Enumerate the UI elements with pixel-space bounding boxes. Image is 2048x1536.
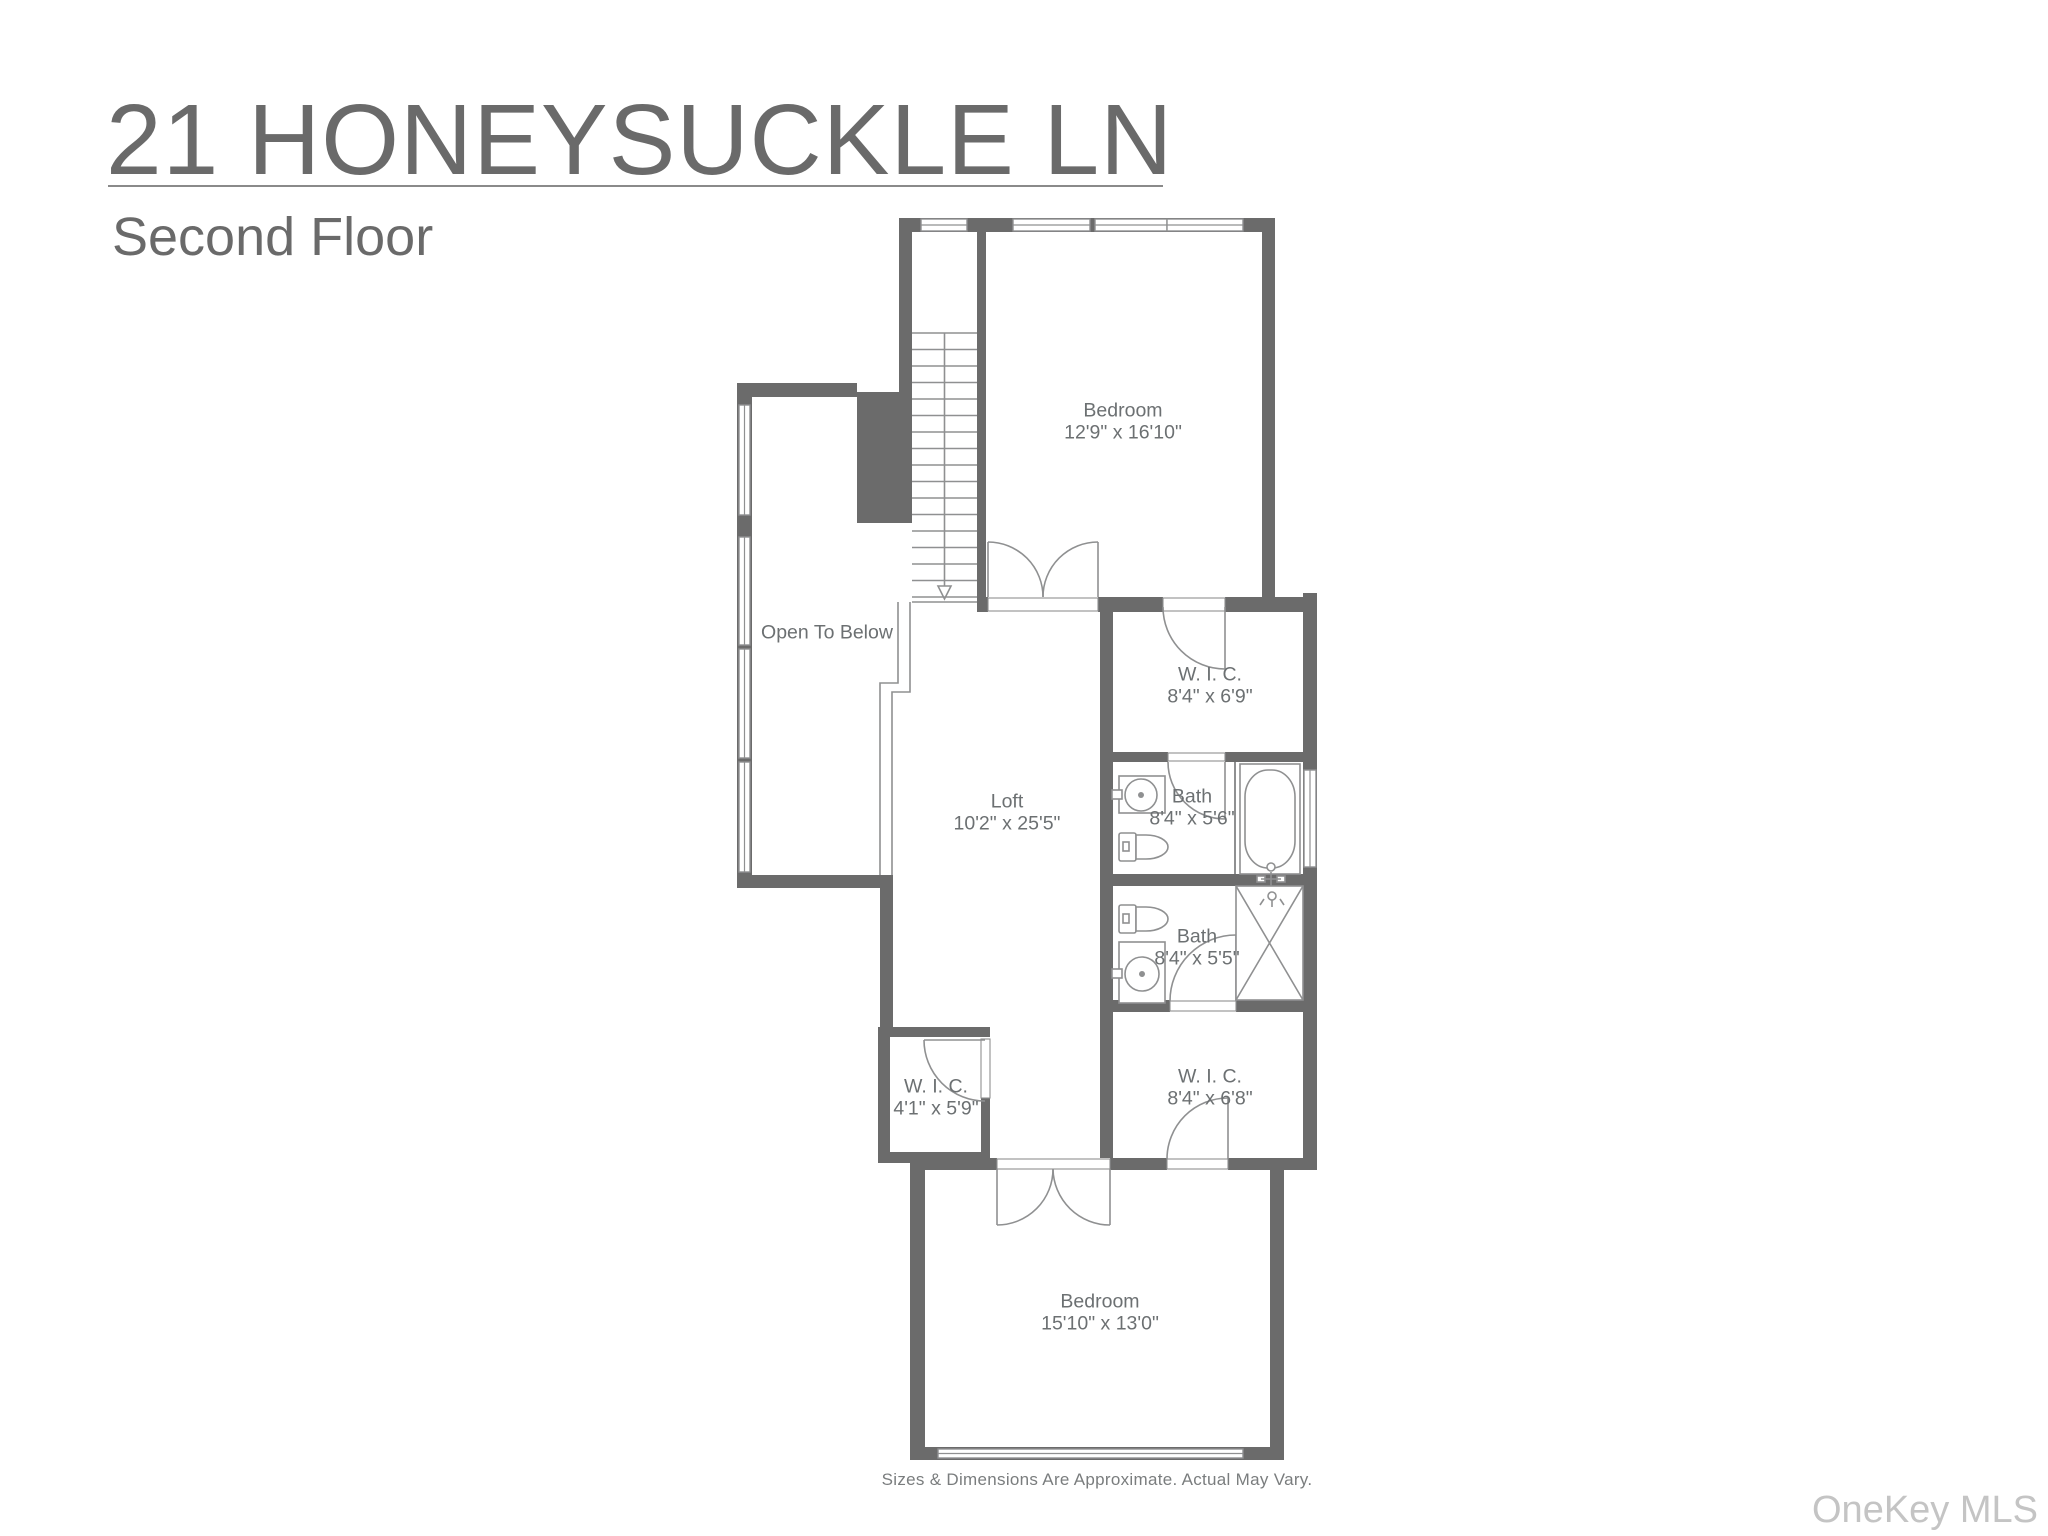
floorplan-page: 21 HONEYSUCKLE LN Second Floor: [0, 0, 2048, 1536]
window-icon: [739, 762, 750, 872]
double-door-icon: [997, 1169, 1110, 1225]
room-label-wic-top: W. I. C. 8'4" x 6'9": [1167, 665, 1252, 708]
room-dimensions: 12'9" x 16'10": [1064, 422, 1182, 444]
room-dimensions: 10'2" x 25'5": [954, 813, 1061, 835]
room-label-bedroom-bottom: Bedroom 15'10" x 13'0": [1041, 1292, 1159, 1335]
room-name: Bedroom: [1064, 401, 1182, 423]
window-icon: [938, 1449, 1243, 1458]
walls: [737, 218, 1317, 1460]
toilet-icon: [1119, 833, 1168, 861]
room-dimensions: 8'4" x 5'5": [1154, 948, 1239, 970]
room-label-open-to-below: Open To Below: [761, 622, 893, 644]
room-name: Bath: [1149, 787, 1234, 809]
disclaimer-text: Sizes & Dimensions Are Approximate. Actu…: [882, 1470, 1313, 1490]
mls-watermark: OneKey MLS: [1812, 1489, 2038, 1532]
room-dimensions: 4'1" x 5'9": [893, 1098, 978, 1120]
room-label-bath-upper: Bath 8'4" x 5'6": [1149, 787, 1234, 830]
room-dimensions: 8'4" x 6'9": [1167, 686, 1252, 708]
windows: [739, 219, 1316, 1458]
room-label-wic-bottom: W. I. C. 8'4" x 6'8": [1167, 1067, 1252, 1110]
room-name: Bedroom: [1041, 1292, 1159, 1314]
room-name: Bath: [1154, 927, 1239, 949]
room-name: W. I. C.: [893, 1077, 978, 1099]
room-label-loft: Loft 10'2" x 25'5": [954, 792, 1061, 835]
window-icon: [1013, 219, 1090, 231]
bathtub-icon: [1240, 764, 1300, 874]
shower-icon: [1236, 886, 1303, 1000]
window-icon: [739, 405, 750, 515]
room-name: W. I. C.: [1167, 1067, 1252, 1089]
room-label-bath-lower: Bath 8'4" x 5'5": [1154, 927, 1239, 970]
window-icon: [739, 537, 750, 645]
window-icon: [921, 219, 967, 231]
door-icon: [1163, 607, 1225, 669]
double-door-icon: [988, 542, 1098, 597]
window-icon: [1095, 219, 1167, 231]
room-dimensions: 8'4" x 5'6": [1149, 808, 1234, 830]
room-name: Loft: [954, 792, 1061, 814]
stairs: [912, 333, 977, 602]
room-label-bedroom-top: Bedroom 12'9" x 16'10": [1064, 401, 1182, 444]
window-icon: [1167, 219, 1243, 231]
room-label-wic-small: W. I. C. 4'1" x 5'9": [893, 1077, 978, 1120]
window-icon: [739, 649, 750, 758]
room-dimensions: 15'10" x 13'0": [1041, 1313, 1159, 1335]
window-icon: [1304, 770, 1316, 867]
room-name: W. I. C.: [1167, 665, 1252, 687]
floorplan-drawing: [0, 0, 2048, 1536]
room-name: Open To Below: [761, 622, 893, 644]
room-dimensions: 8'4" x 6'8": [1167, 1088, 1252, 1110]
